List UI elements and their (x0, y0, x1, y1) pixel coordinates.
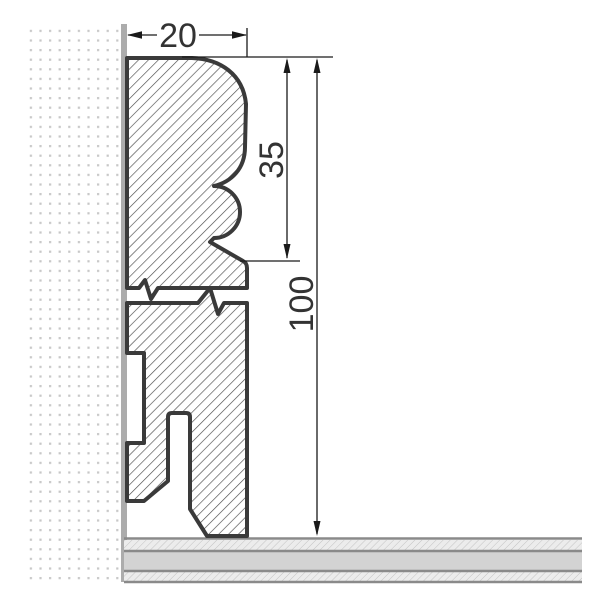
skirting-profile-lower-section (127, 288, 247, 536)
wall-section (25, 24, 121, 580)
dim-arrow-down-icon (284, 244, 291, 259)
floor (124, 539, 582, 583)
dim-arrow-right-icon (232, 31, 247, 39)
total-height-dimension-label: 100 (283, 276, 321, 333)
floor-layer-bottom (124, 572, 582, 581)
dim-arrow-up-icon (284, 58, 291, 73)
upper-height-dimension-label: 35 (253, 141, 291, 179)
dim-arrow-down-icon (314, 521, 321, 536)
width-dimension-label: 20 (159, 17, 197, 55)
drawing-canvas: 20 35 100 (0, 0, 604, 604)
floor-layer-top (124, 540, 582, 550)
dim-arrow-left-icon (127, 31, 142, 39)
floor-underlay (124, 552, 582, 570)
dim-arrow-up-icon (314, 58, 321, 73)
skirting-profile-upper-section (127, 58, 247, 299)
skirting-board-technical-drawing: 20 35 100 (0, 0, 604, 604)
